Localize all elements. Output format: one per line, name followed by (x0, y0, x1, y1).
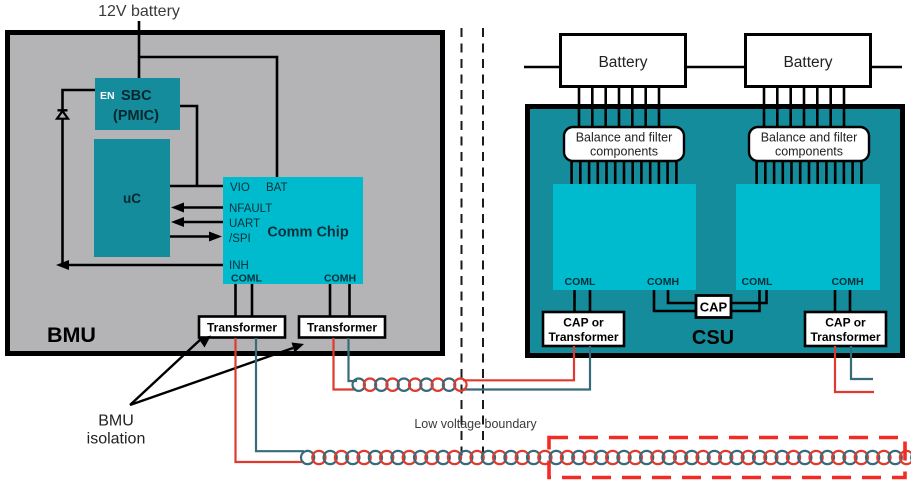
svg-text:Low voltage boundary: Low voltage boundary (414, 417, 537, 431)
svg-text:12V battery: 12V battery (98, 3, 180, 20)
svg-text:Battery: Battery (783, 54, 832, 71)
svg-text:EN: EN (100, 90, 115, 102)
svg-text:components: components (775, 145, 843, 159)
svg-text:Transformer: Transformer (548, 330, 618, 344)
svg-text:Battery: Battery (598, 54, 647, 71)
svg-text:/SPI: /SPI (229, 233, 251, 245)
svg-text:INH: INH (229, 260, 249, 272)
svg-text:COML: COML (565, 276, 596, 288)
svg-text:Transformer: Transformer (810, 330, 880, 344)
svg-text:UART: UART (229, 218, 260, 230)
svg-text:COML: COML (742, 276, 773, 288)
svg-text:Transformer: Transformer (207, 321, 277, 335)
svg-text:COMH: COMH (324, 273, 356, 285)
svg-text:uC: uC (123, 191, 141, 206)
svg-text:BMU: BMU (98, 413, 134, 430)
svg-text:isolation: isolation (87, 431, 146, 448)
svg-text:COML: COML (231, 273, 262, 285)
svg-text:CAP or: CAP or (563, 316, 604, 330)
svg-text:SBC: SBC (121, 88, 152, 104)
svg-text:components: components (590, 145, 658, 159)
svg-text:CAP: CAP (700, 300, 728, 315)
svg-text:(PMIC): (PMIC) (113, 108, 159, 124)
svg-text:CAP or: CAP or (825, 316, 866, 330)
svg-text:Balance and filter: Balance and filter (576, 131, 673, 145)
svg-text:NFAULT: NFAULT (229, 203, 272, 215)
svg-text:BAT: BAT (266, 182, 288, 194)
svg-text:Balance and filter: Balance and filter (761, 131, 858, 145)
svg-text:Transformer: Transformer (307, 321, 377, 335)
svg-text:VIO: VIO (230, 182, 250, 194)
svg-text:BMU: BMU (47, 323, 96, 347)
svg-text:CSU: CSU (692, 327, 734, 349)
svg-text:COMH: COMH (647, 276, 679, 288)
svg-text:COMH: COMH (831, 276, 863, 288)
svg-text:Comm Chip: Comm Chip (267, 225, 349, 241)
